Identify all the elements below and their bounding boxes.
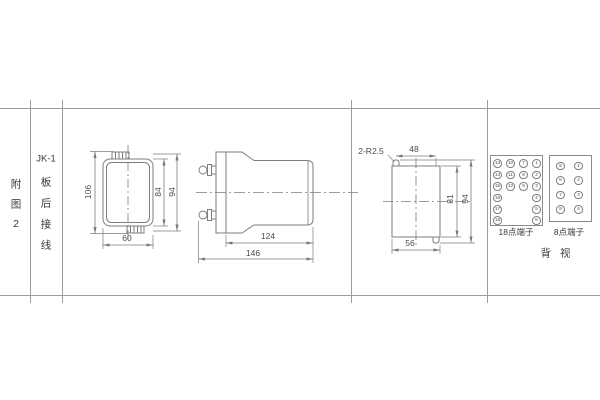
dim-124: 124 bbox=[261, 231, 275, 241]
terminal-block-18: 131071141182151293164175186 bbox=[490, 155, 543, 226]
dim-81: 81 bbox=[445, 194, 455, 203]
wiring-label-char-1: 板 bbox=[41, 175, 52, 190]
terminal-1: 1 bbox=[532, 159, 541, 168]
terminal-6: 6 bbox=[532, 216, 541, 225]
terminal-3: 3 bbox=[532, 182, 541, 191]
terminal-10: 10 bbox=[506, 159, 515, 168]
figure-label-number: 2 bbox=[13, 218, 19, 230]
terminal-11: 11 bbox=[506, 171, 515, 180]
dim-94-front: 94 bbox=[167, 187, 177, 196]
cutout-view bbox=[383, 155, 475, 254]
dim-48: 48 bbox=[409, 144, 418, 154]
terminal-4: 4 bbox=[532, 194, 541, 203]
terminal-18-label: 18点端子 bbox=[499, 226, 534, 238]
terminal-1: 1 bbox=[574, 162, 583, 171]
terminal-14: 14 bbox=[493, 171, 502, 180]
terminal-18: 18 bbox=[493, 216, 502, 225]
drawing-sheet: 附 图 2 JK-1 板 后 接 线 106 84 94 60 124 146 … bbox=[0, 0, 600, 400]
terminal-9: 9 bbox=[519, 182, 528, 191]
terminal-block-8: 51627384 bbox=[549, 155, 592, 222]
model-label: JK-1 bbox=[36, 154, 56, 165]
figure-label-char-1: 附 bbox=[11, 177, 22, 192]
dim-94-cutout: 94 bbox=[460, 194, 470, 203]
terminal-16: 16 bbox=[493, 194, 502, 203]
terminal-7: 7 bbox=[556, 191, 565, 200]
terminal-8: 8 bbox=[556, 205, 565, 214]
terminal-5: 5 bbox=[532, 205, 541, 214]
dim-146: 146 bbox=[246, 248, 260, 258]
figure-label-char-2: 图 bbox=[11, 197, 22, 212]
terminal-8-label: 8点端子 bbox=[554, 226, 584, 238]
dim-notch-radius: 2-R2.5 bbox=[358, 146, 384, 156]
terminal-7: 7 bbox=[519, 159, 528, 168]
terminal-4: 4 bbox=[574, 205, 583, 214]
terminal-15: 15 bbox=[493, 182, 502, 191]
terminal-3: 3 bbox=[574, 191, 583, 200]
front-view bbox=[90, 145, 181, 249]
terminal-6: 6 bbox=[556, 176, 565, 185]
dim-84: 84 bbox=[153, 187, 163, 196]
terminal-13: 13 bbox=[493, 159, 502, 168]
terminal-8: 8 bbox=[519, 171, 528, 180]
wiring-label-char-2: 后 bbox=[41, 196, 52, 211]
back-view-label: 背视 bbox=[541, 246, 580, 261]
dim-56: 56 bbox=[405, 238, 414, 248]
terminal-2: 2 bbox=[574, 176, 583, 185]
dim-106: 106 bbox=[83, 185, 93, 199]
terminal-2: 2 bbox=[532, 171, 541, 180]
side-view bbox=[196, 152, 358, 263]
terminal-5: 5 bbox=[556, 162, 565, 171]
terminal-12: 12 bbox=[506, 182, 515, 191]
wiring-label-char-4: 线 bbox=[41, 238, 52, 253]
wiring-label-char-3: 接 bbox=[41, 217, 52, 232]
dim-60: 60 bbox=[122, 233, 131, 243]
terminal-17: 17 bbox=[493, 205, 502, 214]
